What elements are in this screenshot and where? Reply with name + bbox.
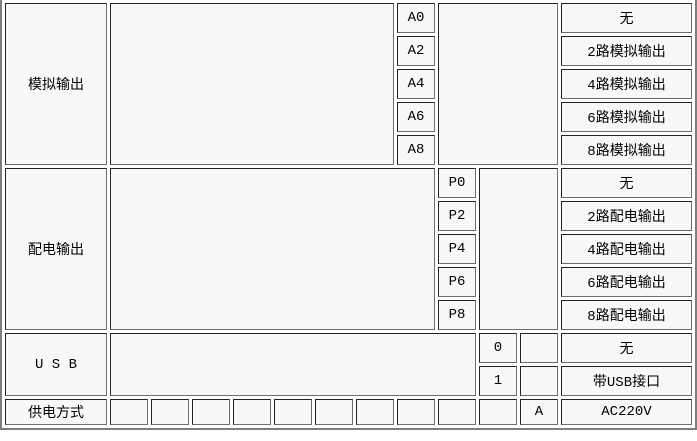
desc-cell-p6: 6路配电输出 [561, 267, 692, 297]
distribution-right-span-cell [479, 168, 558, 330]
usb-left-span-cell [110, 333, 476, 396]
model-digit-cell-3 [192, 399, 230, 425]
table-row: U S B 0 无 [5, 333, 692, 363]
table-row: 配电输出 P0 无 [5, 168, 692, 198]
code-cell-p8: P8 [438, 300, 476, 330]
code-cell-a4: A4 [397, 69, 435, 99]
desc-cell-a6: 6路模拟输出 [561, 102, 692, 132]
row-label-power-supply: 供电方式 [5, 399, 107, 425]
code-cell-a8: A8 [397, 135, 435, 165]
model-digit-cell-4 [233, 399, 271, 425]
model-digit-cell-1 [110, 399, 148, 425]
desc-cell-a2: 2路模拟输出 [561, 36, 692, 66]
code-cell-usb-0: 0 [479, 333, 517, 363]
desc-cell-p0: 无 [561, 168, 692, 198]
model-digit-cell-7 [356, 399, 394, 425]
desc-cell-usb-1: 带USB接口 [561, 366, 692, 396]
row-label-analog-output: 模拟输出 [5, 3, 107, 165]
code-cell-a0: A0 [397, 3, 435, 33]
code-cell-a2: A2 [397, 36, 435, 66]
model-digit-cell-9 [438, 399, 476, 425]
desc-cell-p2: 2路配电输出 [561, 201, 692, 231]
model-digit-cell-10 [479, 399, 517, 425]
desc-cell-power-a: AC220V [561, 399, 692, 425]
desc-cell-p8: 8路配电输出 [561, 300, 692, 330]
code-cell-power-a: A [520, 399, 558, 425]
table-row: 供电方式 A AC220V [5, 399, 692, 425]
usb-spacer-cell-0 [520, 333, 558, 363]
desc-cell-p4: 4路配电输出 [561, 234, 692, 264]
code-cell-p6: P6 [438, 267, 476, 297]
desc-cell-a4: 4路模拟输出 [561, 69, 692, 99]
row-label-usb: U S B [5, 333, 107, 396]
code-cell-p0: P0 [438, 168, 476, 198]
code-cell-usb-1: 1 [479, 366, 517, 396]
desc-cell-a0: 无 [561, 3, 692, 33]
model-digit-cell-6 [315, 399, 353, 425]
model-digit-cell-5 [274, 399, 312, 425]
model-digit-cell-8 [397, 399, 435, 425]
distribution-left-span-cell [110, 168, 435, 330]
row-label-distribution-output: 配电输出 [5, 168, 107, 330]
code-cell-a6: A6 [397, 102, 435, 132]
model-selection-table: 模拟输出 A0 无 A2 2路模拟输出 A4 4路模拟输出 A6 6路模拟输出 … [0, 0, 697, 430]
analog-left-span-cell [110, 3, 394, 165]
code-cell-p4: P4 [438, 234, 476, 264]
code-cell-p2: P2 [438, 201, 476, 231]
desc-cell-a8: 8路模拟输出 [561, 135, 692, 165]
desc-cell-usb-0: 无 [561, 333, 692, 363]
usb-spacer-cell-1 [520, 366, 558, 396]
model-digit-cell-2 [151, 399, 189, 425]
table-row: 模拟输出 A0 无 [5, 3, 692, 33]
analog-right-span-cell [438, 3, 558, 165]
